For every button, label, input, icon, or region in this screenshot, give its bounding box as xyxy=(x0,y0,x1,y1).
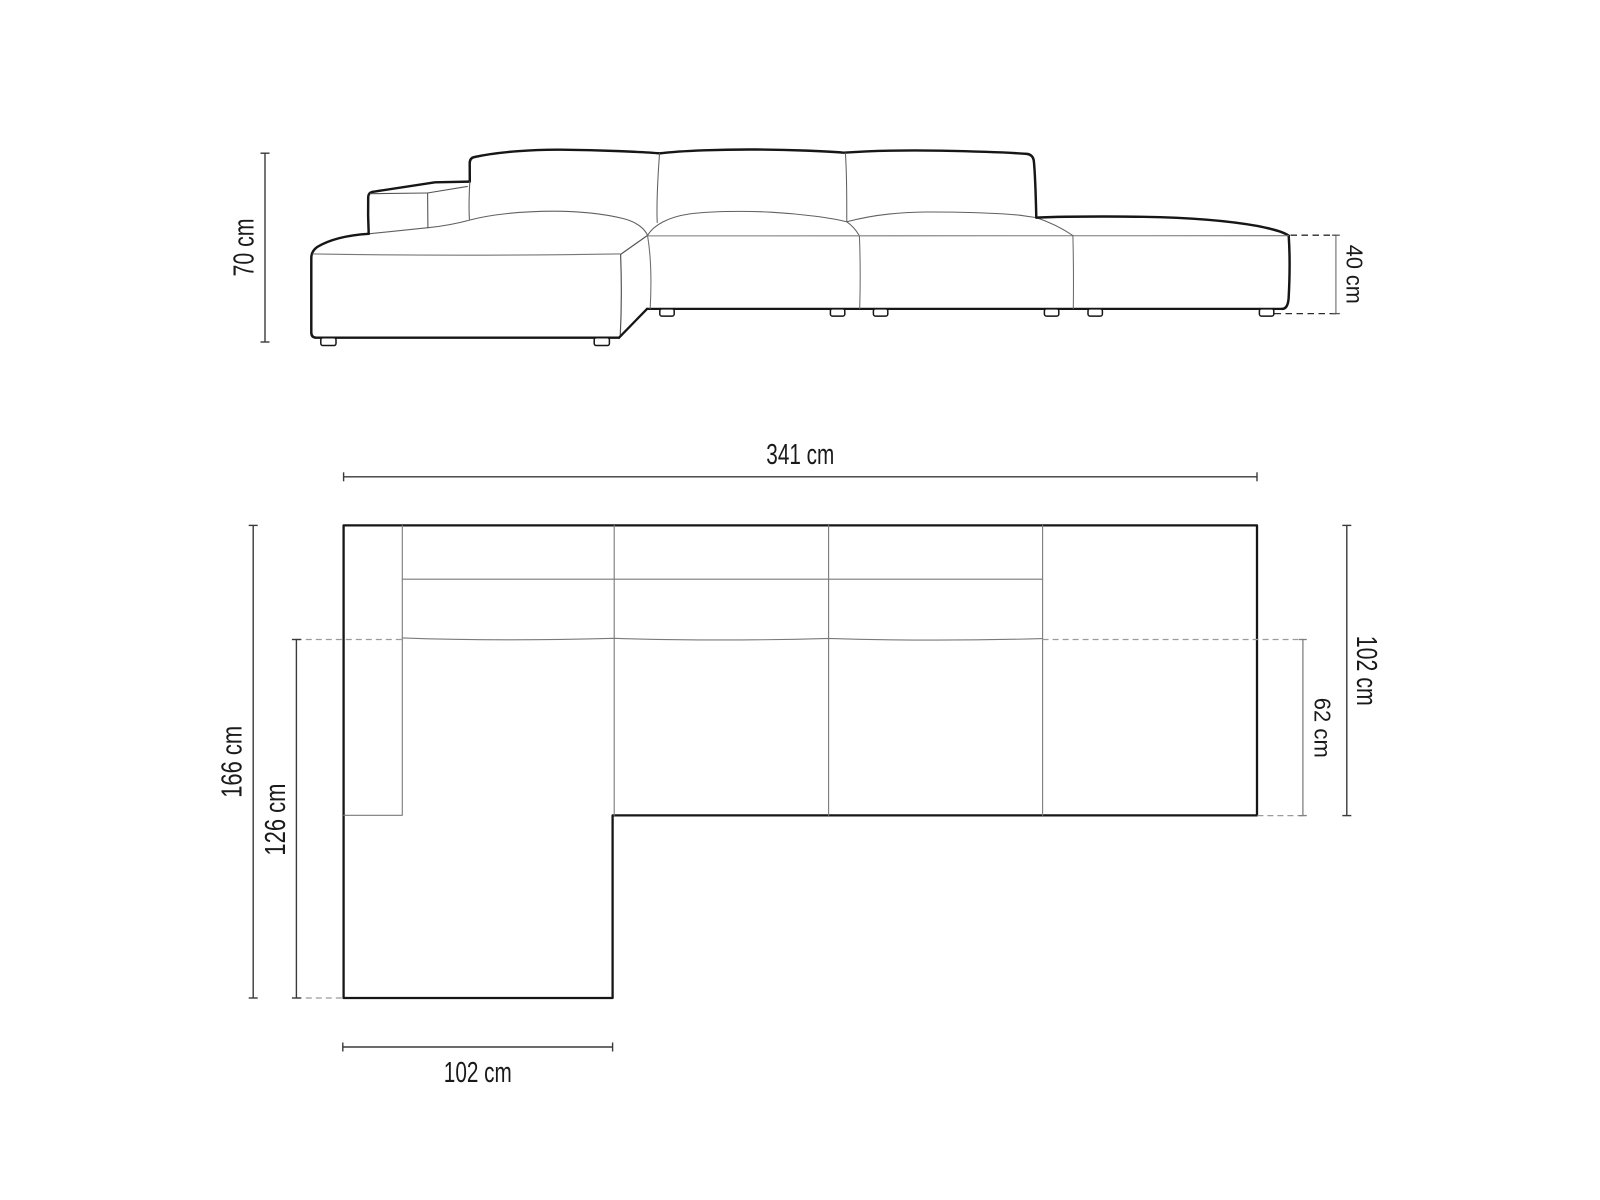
svg-text:70 cm: 70 cm xyxy=(229,219,261,277)
svg-text:62 cm: 62 cm xyxy=(1309,698,1335,758)
svg-text:166 cm: 166 cm xyxy=(217,726,249,798)
svg-text:126 cm: 126 cm xyxy=(260,784,292,856)
svg-text:341 cm: 341 cm xyxy=(766,439,834,471)
svg-text:102 cm: 102 cm xyxy=(444,1057,512,1089)
svg-text:40 cm: 40 cm xyxy=(1342,245,1368,304)
svg-text:102 cm: 102 cm xyxy=(1350,636,1382,706)
